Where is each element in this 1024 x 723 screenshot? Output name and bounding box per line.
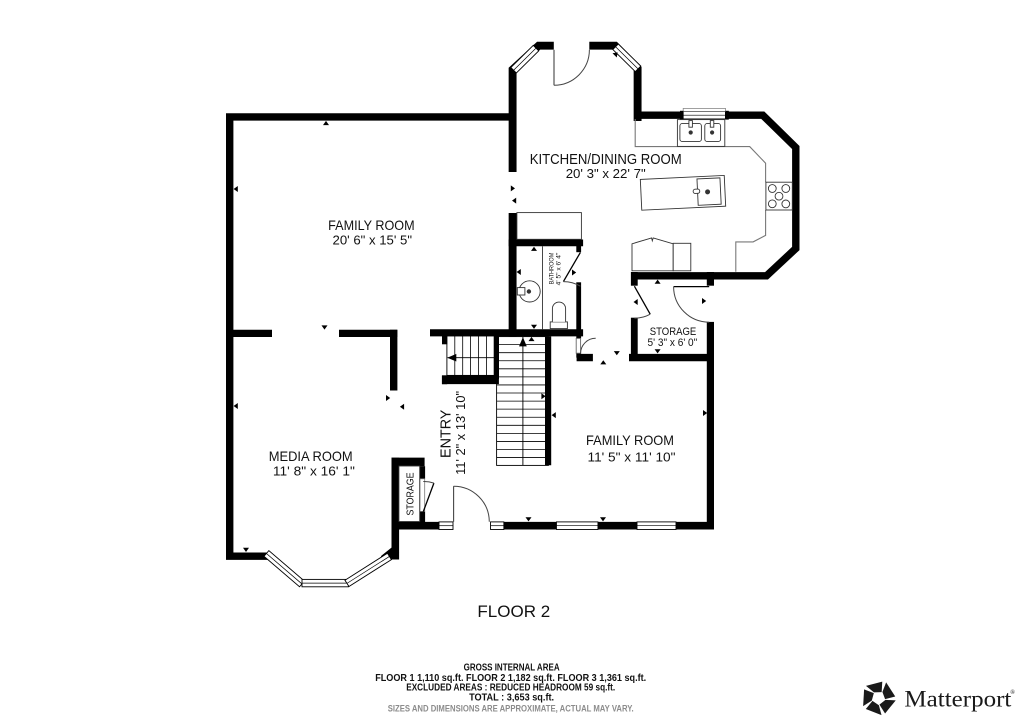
svg-text:BATHROOM: BATHROOM: [549, 253, 556, 285]
svg-text:11' 8" x 16' 1": 11' 8" x 16' 1": [273, 464, 355, 479]
svg-text:11' 2" x 13' 10": 11' 2" x 13' 10": [453, 391, 468, 475]
svg-text:4' 5" x 6' 4": 4' 5" x 6' 4": [556, 253, 563, 286]
svg-text:ENTRY: ENTRY: [438, 409, 454, 458]
svg-text:FAMILY ROOM: FAMILY ROOM: [328, 217, 415, 233]
svg-text:20' 3" x 22' 7": 20' 3" x 22' 7": [566, 166, 646, 181]
svg-text:FLOOR 2: FLOOR 2: [477, 602, 550, 621]
svg-text:GROSS INTERNAL AREA: GROSS INTERNAL AREA: [464, 663, 560, 674]
svg-text:SIZES AND DIMENSIONS ARE APPRO: SIZES AND DIMENSIONS ARE APPROXIMATE, AC…: [388, 703, 634, 713]
svg-text:FAMILY ROOM: FAMILY ROOM: [586, 432, 674, 448]
svg-text:20' 6" x 15' 5": 20' 6" x 15' 5": [333, 232, 413, 247]
svg-text:Matterport: Matterport: [904, 687, 1011, 713]
svg-text:TOTAL : 3,653 sq.ft.: TOTAL : 3,653 sq.ft.: [469, 692, 554, 703]
svg-text:®: ®: [1010, 689, 1015, 696]
svg-text:MEDIA ROOM: MEDIA ROOM: [269, 448, 353, 464]
svg-text:STORAGE: STORAGE: [406, 472, 417, 515]
svg-text:5' 3" x 6' 0": 5' 3" x 6' 0": [648, 337, 698, 349]
svg-text:11' 5" x 11' 10": 11' 5" x 11' 10": [588, 450, 676, 465]
